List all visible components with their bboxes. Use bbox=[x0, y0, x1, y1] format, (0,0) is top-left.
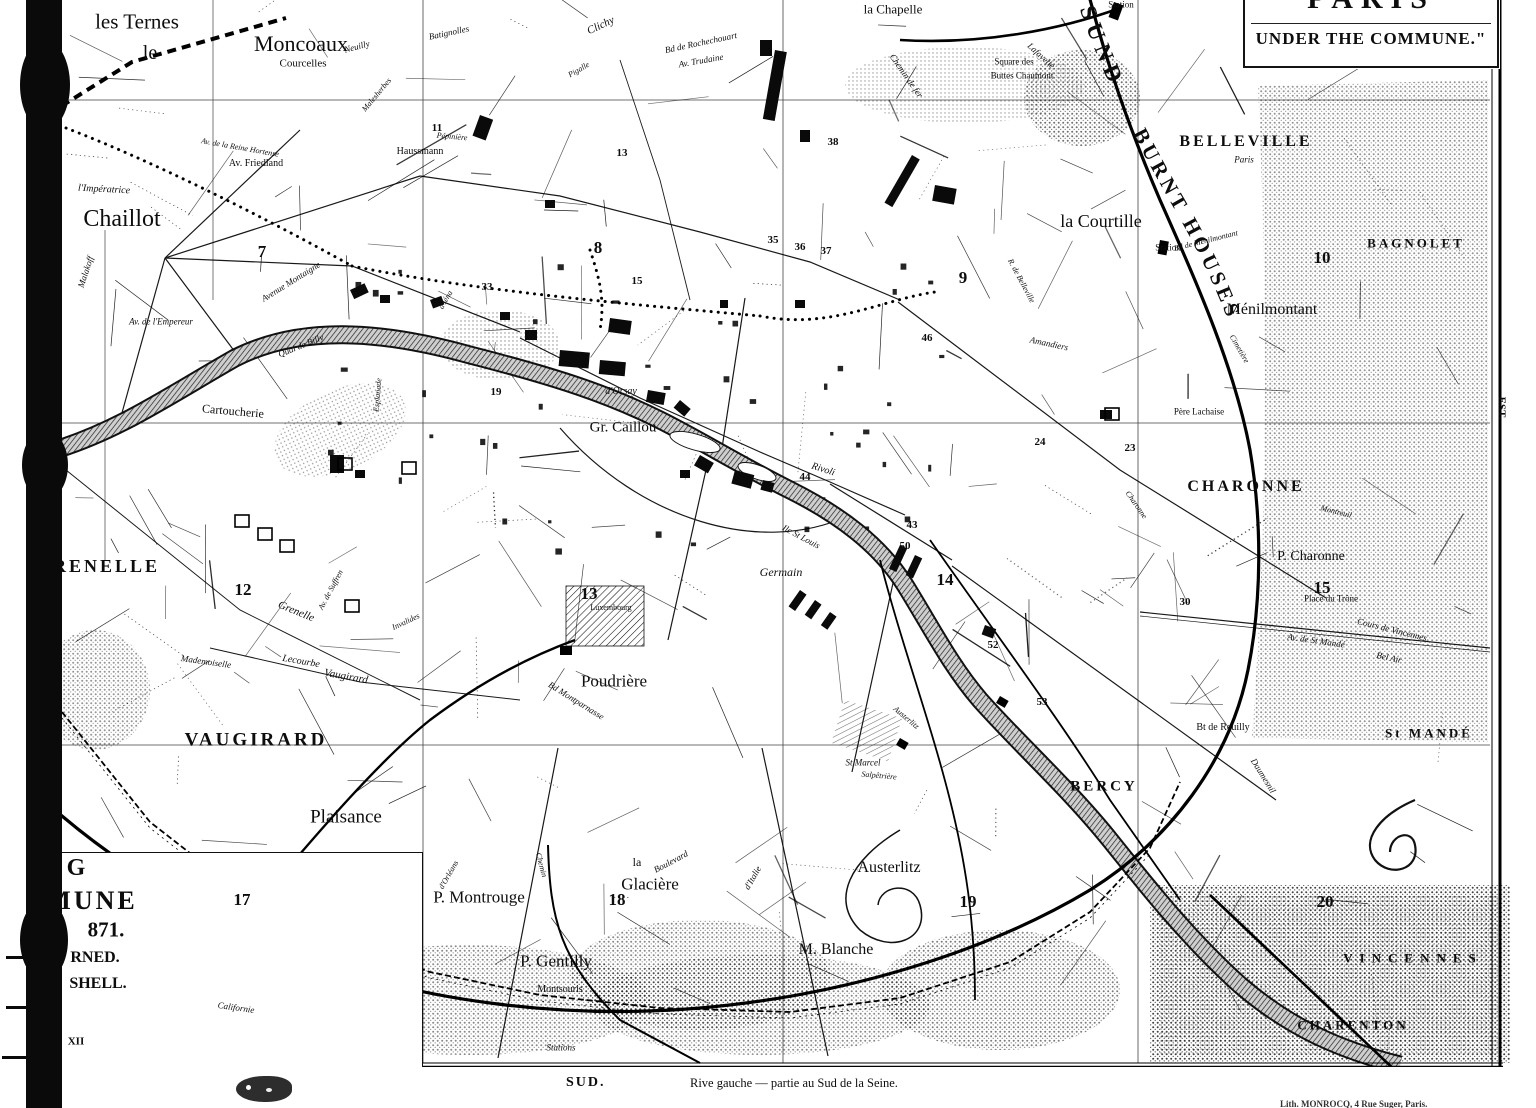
map-label-bercy: BERCY bbox=[1070, 780, 1138, 795]
map-label-montsouris: Montsouris bbox=[537, 985, 583, 995]
map-label-germain: Germain bbox=[760, 566, 803, 578]
ref-number-30: 30 bbox=[1180, 596, 1191, 608]
map-title-box: PARIS UNDER THE COMMUNE." bbox=[1243, 0, 1499, 68]
map-label-glaci-re: Glacière bbox=[621, 876, 679, 893]
map-label-vaugirard: VAUGIRARD bbox=[185, 731, 328, 750]
ref-number-35: 35 bbox=[768, 234, 779, 246]
map-label-p-re-lachaise: Père Lachaise bbox=[1174, 408, 1224, 417]
map-label-vincennes: VINCENNES bbox=[1343, 952, 1483, 965]
ref-number-13: 13 bbox=[617, 147, 628, 159]
map-label-la-chapelle: la Chapelle bbox=[864, 3, 923, 16]
gutter-blob bbox=[20, 900, 68, 980]
map-label-place-du-tr-ne: Place du Trône bbox=[1304, 595, 1358, 604]
section-number-14: 14 bbox=[937, 570, 954, 590]
map-label-871: 871. bbox=[88, 920, 125, 941]
section-number-13: 13 bbox=[581, 584, 598, 604]
bievre-river bbox=[846, 830, 922, 942]
section-number-9: 9 bbox=[959, 268, 968, 288]
ink-stamp-blob bbox=[236, 1076, 292, 1102]
map-label-p-charonne: P. Charonne bbox=[1277, 550, 1345, 564]
map-label-bagnolet: BAGNOLET bbox=[1367, 237, 1465, 250]
ref-number-23: 23 bbox=[1125, 442, 1136, 454]
map-label-chaillot: Chaillot bbox=[83, 207, 160, 231]
svg-text:BURNT HOUSES: BURNT HOUSES bbox=[1128, 124, 1246, 323]
ref-number-19: 19 bbox=[491, 386, 502, 398]
section-number-19: 19 bbox=[960, 892, 977, 912]
section-number-20: 20 bbox=[1317, 892, 1334, 912]
ref-number-53: 53 bbox=[1037, 696, 1048, 708]
map-label-xii: XII bbox=[68, 1037, 85, 1048]
ref-number-46: 46 bbox=[922, 332, 933, 344]
map-label-paris: Paris bbox=[1234, 156, 1254, 165]
ref-number-37: 37 bbox=[821, 245, 832, 257]
map-label-le: le bbox=[143, 43, 157, 63]
section-number-12: 12 bbox=[235, 580, 252, 600]
map-title: PARIS bbox=[1245, 0, 1497, 16]
map-label-av-friedland: Av. Friedland bbox=[229, 159, 283, 169]
map-label-rned: RNED. bbox=[70, 950, 119, 966]
map-label-bt-de-reuilly: Bt de Reuilly bbox=[1196, 723, 1249, 733]
map-label-les-ternes: les Ternes bbox=[95, 12, 179, 33]
ref-number-52: 52 bbox=[988, 639, 999, 651]
map-label-stations: Stations bbox=[546, 1044, 575, 1053]
ref-number-24: 24 bbox=[1035, 436, 1046, 448]
compass-south-label: SUD. bbox=[566, 1075, 606, 1091]
section-number-15: 15 bbox=[1314, 578, 1331, 598]
map-label-st-mand: St MANDÉ bbox=[1385, 727, 1473, 740]
section-number-7: 7 bbox=[258, 242, 267, 262]
map-label-est: EST. bbox=[1496, 397, 1507, 420]
map-label-m-nilmontant: Ménilmontant bbox=[1227, 302, 1318, 318]
map-label-station: Station bbox=[1108, 1, 1134, 10]
map-subtitle: UNDER THE COMMUNE." bbox=[1251, 23, 1491, 49]
gutter-blob bbox=[20, 40, 70, 130]
section-number-17: 17 bbox=[234, 890, 251, 910]
map-label-plaisance: Plaisance bbox=[310, 808, 382, 827]
ref-number-11: 11 bbox=[432, 122, 442, 134]
ref-number-33: 33 bbox=[482, 281, 493, 293]
ref-number-36: 36 bbox=[795, 241, 806, 253]
map-label-belleville: BELLEVILLE bbox=[1179, 134, 1312, 150]
map-label-p-montrouge: P. Montrouge bbox=[433, 889, 525, 906]
gutter-blob bbox=[22, 430, 68, 500]
map-label-gr-caillou: Gr. Caillou bbox=[590, 421, 657, 436]
section-number-18: 18 bbox=[609, 890, 626, 910]
gutter-tick bbox=[6, 956, 30, 959]
map-label-m-blanche: M. Blanche bbox=[799, 942, 874, 958]
map-label-buttes-chaumont: Buttes Chaumont bbox=[991, 72, 1054, 81]
map-label-charenton: CHARENTON bbox=[1297, 1019, 1408, 1032]
map-label-av-de-l-empereur: Av. de l'Empereur bbox=[129, 318, 193, 327]
ref-number-15: 15 bbox=[632, 275, 643, 287]
burnt-houses-text-part2: BURNT HOUSES bbox=[1128, 124, 1246, 323]
ref-number-43: 43 bbox=[907, 519, 918, 531]
map-label-austerlitz: Austerlitz bbox=[857, 860, 920, 876]
ref-number-38: 38 bbox=[828, 136, 839, 148]
ref-number-50: 50 bbox=[900, 540, 911, 552]
map-label-la-courtille: la Courtille bbox=[1060, 212, 1141, 230]
map-label-p-gentilly: P. Gentilly bbox=[520, 953, 592, 970]
railway-dashed bbox=[36, 18, 286, 122]
section-number-8: 8 bbox=[594, 238, 603, 258]
scanned-map-page: SUND BURNT HOUSES PARIS UNDER THE COMMUN… bbox=[0, 0, 1536, 1108]
section-number-10: 10 bbox=[1314, 248, 1331, 268]
lithographer-credit: Lith. MONROCQ, 4 Rue Suger, Paris. bbox=[1280, 1099, 1427, 1108]
map-label-d-orsay: d'Orsay bbox=[605, 387, 637, 397]
map-label-luxembourg: Luxembourg bbox=[590, 604, 631, 612]
map-label-st-marcel: St Marcel bbox=[846, 759, 881, 768]
map-label-courcelles: Courcelles bbox=[279, 59, 326, 70]
caption-text: Rive gauche — partie au Sud de la Seine. bbox=[690, 1076, 898, 1091]
map-label-charonne: CHARONNE bbox=[1187, 479, 1304, 495]
gutter-tick bbox=[2, 1056, 30, 1059]
map-label-moncoaux: Moncoaux bbox=[254, 33, 348, 55]
gutter-tick bbox=[6, 1006, 30, 1009]
map-label-haussmann: Haussmann bbox=[397, 147, 444, 157]
map-label-poudri-re: Poudrière bbox=[581, 673, 647, 690]
map-label-shell: SHELL. bbox=[69, 976, 126, 992]
map-label-g: G bbox=[67, 856, 86, 880]
caption-band: SUD. Rive gauche — partie au Sud de la S… bbox=[0, 1067, 1536, 1108]
map-label-square-des: Square des bbox=[994, 58, 1033, 67]
map-label-la: la bbox=[633, 856, 642, 868]
ref-number-44: 44 bbox=[800, 471, 811, 483]
marne-river bbox=[1370, 800, 1416, 870]
